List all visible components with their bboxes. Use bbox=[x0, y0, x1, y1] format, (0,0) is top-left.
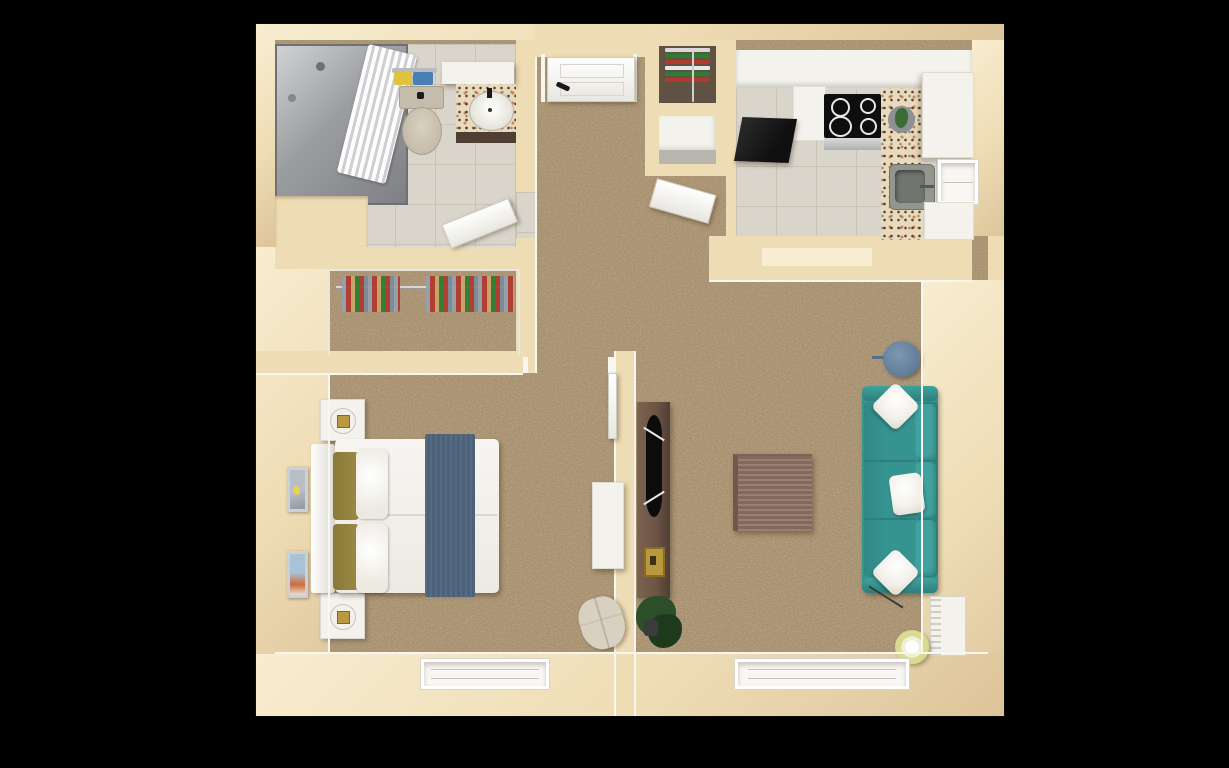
entry-door-jamb-left bbox=[541, 54, 545, 102]
baseboard bbox=[921, 280, 923, 654]
bathroom-half-wall bbox=[275, 196, 368, 247]
hanging-clothes bbox=[342, 276, 400, 312]
bathroom-mirror-shelf bbox=[442, 62, 514, 84]
sofa-seat-seam bbox=[864, 518, 916, 520]
front-door bbox=[547, 57, 635, 102]
toilet-flush-button bbox=[417, 92, 424, 99]
kitchen-cabinet-column-lower bbox=[924, 202, 974, 240]
towel-blue bbox=[413, 72, 433, 85]
oven-front bbox=[824, 138, 881, 150]
art-canvas bbox=[290, 554, 305, 595]
kitchen-window bbox=[938, 160, 978, 204]
refrigerator bbox=[734, 117, 797, 163]
baseboard bbox=[328, 373, 330, 654]
shower-head-icon bbox=[316, 62, 325, 71]
linen-stack bbox=[665, 60, 710, 64]
linen-stack bbox=[665, 78, 710, 82]
floor-plan bbox=[256, 24, 1004, 716]
toilet-bowl bbox=[402, 107, 442, 155]
side-table-leg bbox=[872, 356, 884, 359]
vanity-cabinet bbox=[456, 132, 516, 143]
kitchen-faucet-icon bbox=[920, 185, 934, 188]
linen-stack bbox=[665, 66, 710, 70]
kitchen-cabinet-column-upper bbox=[922, 72, 974, 158]
pillow-white bbox=[356, 449, 388, 519]
bedroom-doorframe bbox=[523, 357, 528, 373]
baseboard bbox=[275, 652, 988, 654]
sofa-seat-seam bbox=[864, 460, 916, 462]
vanity-faucet-icon bbox=[487, 88, 492, 98]
brass-box-detail bbox=[650, 556, 656, 565]
front-door-panel bbox=[560, 82, 624, 96]
burner-icon bbox=[831, 98, 850, 117]
bed-headboard bbox=[311, 444, 335, 593]
kitchen-passthrough-niche bbox=[762, 248, 872, 266]
burner-icon bbox=[860, 98, 876, 114]
nightstand-south bbox=[320, 593, 365, 639]
shelf-pole bbox=[692, 50, 694, 102]
bedroom-doorframe bbox=[608, 357, 614, 373]
tv bbox=[646, 415, 662, 517]
wall-art-2 bbox=[287, 551, 308, 598]
sink-drain-icon bbox=[488, 108, 492, 112]
shower-control-icon bbox=[288, 94, 296, 102]
living-room-window bbox=[735, 659, 909, 689]
bedroom-desk bbox=[592, 482, 624, 569]
sofa-back-cushion bbox=[915, 520, 936, 576]
table-lamp-icon bbox=[330, 604, 356, 630]
wall-kitchen-left bbox=[726, 40, 736, 236]
niche-shelf-front bbox=[659, 150, 716, 164]
coffee-table bbox=[733, 454, 812, 531]
linen-shelves bbox=[659, 46, 716, 103]
wall-bathroom-bottom bbox=[275, 247, 516, 269]
bedroom-window bbox=[421, 659, 549, 689]
outer-wall-right-upper bbox=[972, 40, 1004, 236]
niche-shelf bbox=[659, 116, 716, 150]
art-detail bbox=[293, 486, 300, 495]
burner-icon bbox=[860, 118, 877, 135]
bedroom-door bbox=[608, 373, 617, 439]
table-lamp-icon bbox=[330, 408, 356, 434]
round-side-table bbox=[883, 341, 920, 377]
linen-stack bbox=[665, 54, 710, 58]
bed-runner bbox=[425, 434, 475, 597]
linen-stack bbox=[665, 48, 710, 52]
nightstand-north bbox=[320, 399, 365, 441]
kitchen-counter-left bbox=[793, 86, 826, 141]
plant-pot bbox=[644, 620, 658, 636]
front-door-panel bbox=[560, 64, 624, 78]
sofa-back-cushion bbox=[915, 404, 936, 460]
outer-wall-left-upper bbox=[256, 40, 275, 247]
radiator bbox=[930, 596, 966, 656]
pillow-white bbox=[356, 523, 388, 593]
art-canvas bbox=[290, 470, 305, 509]
cooktop bbox=[824, 94, 881, 138]
brass-box bbox=[644, 547, 665, 577]
towel-yellow bbox=[394, 72, 412, 85]
linen-stack bbox=[665, 72, 710, 76]
burner-icon bbox=[829, 116, 852, 137]
entry-door-lintel bbox=[535, 24, 645, 57]
wall-art-1 bbox=[287, 467, 308, 512]
bathroom-doorway-threshold bbox=[516, 192, 535, 238]
hanging-clothes bbox=[426, 276, 514, 312]
